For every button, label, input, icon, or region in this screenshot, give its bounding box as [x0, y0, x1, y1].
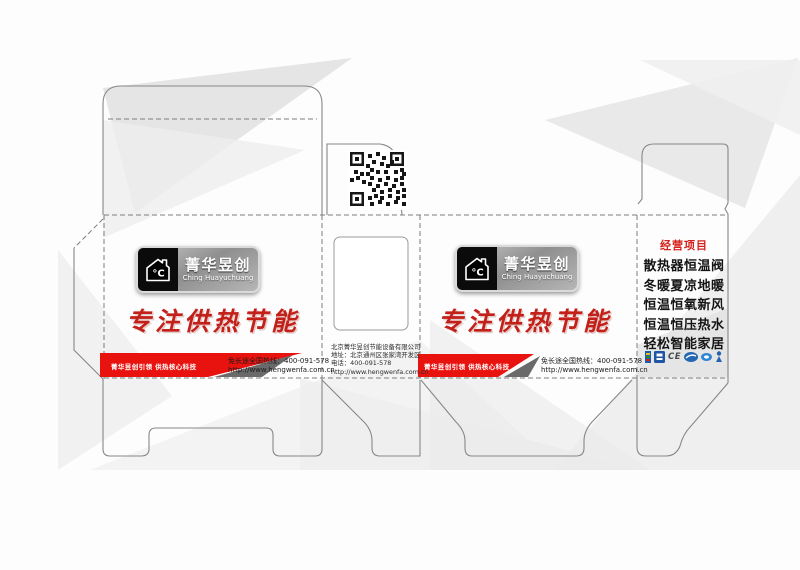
- degree-mark: °C: [152, 268, 164, 279]
- hotline-text: 免长途全国热线：400-091-578: [541, 357, 648, 366]
- figure-badge-icon: [715, 351, 723, 363]
- website-text: http://www.hengwenfa.com.cn: [541, 366, 648, 375]
- business-item: 冬暖夏凉地暖: [636, 277, 732, 297]
- business-item: 恒温恒氧新风: [636, 296, 732, 316]
- company-info-block: 北京菁华昱创节能设备有限公司 地址：北京通州区张家湾开发区 电话：400-091…: [331, 343, 428, 376]
- logo-house-icon: °C: [457, 247, 497, 290]
- logo-house-icon: °C: [138, 248, 178, 291]
- company-phone: 电话：400-091-578: [331, 359, 428, 367]
- ce-mark: CE: [668, 352, 681, 362]
- website-text: http://www.hengwenfa.com.cn: [228, 366, 335, 375]
- banner-tagline-back: 菁华昱创引领 供热核心科技: [424, 361, 509, 371]
- contact-block-front: 免长途全国热线：400-091-578 http://www.hengwenfa…: [228, 357, 335, 374]
- business-scope-panel: 经营项目 散热器恒温阀 冬暖夏凉地暖 恒温恒氧新风 恒温恒压热水 轻松智能家居: [636, 237, 732, 355]
- business-scope-title: 经营项目: [636, 237, 732, 253]
- certification-icons-row: CE: [645, 350, 723, 364]
- business-item: 恒温恒压热水: [636, 316, 732, 336]
- contact-block-back: 免长途全国热线：400-091-578 http://www.hengwenfa…: [541, 357, 648, 374]
- brand-name-cn: 菁华昱创: [504, 257, 570, 272]
- box-dieline-artboard: °C 菁华昱创 Ching Huayuchuang 专注供热节能 菁华昱创引领 …: [0, 0, 800, 570]
- qr-code: [348, 150, 408, 210]
- hotline-text: 免长途全国热线：400-091-578: [228, 357, 335, 366]
- energy-label-icon: [645, 351, 651, 363]
- slogan-back: 专注供热节能: [419, 302, 631, 338]
- oval-badge-icon: [701, 353, 712, 361]
- brand-name-en: Ching Huayuchuang: [183, 275, 254, 282]
- brand-logo-back: °C 菁华昱创 Ching Huayuchuang: [455, 245, 579, 292]
- company-name: 北京菁华昱创节能设备有限公司: [331, 343, 428, 351]
- iso-swirl-badge-icon: [684, 352, 698, 362]
- glue-flap-crease: [74, 219, 103, 248]
- brand-name-cn: 菁华昱创: [185, 258, 251, 273]
- business-item: 散热器恒温阀: [636, 257, 732, 277]
- quality-cert-icon: [654, 351, 665, 363]
- brand-logo-front: °C 菁华昱创 Ching Huayuchuang: [136, 246, 260, 293]
- banner-tagline-front: 菁华昱创引领 供热核心科技: [111, 361, 196, 371]
- brand-name-en: Ching Huayuchuang: [502, 274, 573, 281]
- window-cutout: [334, 237, 408, 330]
- slogan-front: 专注供热节能: [107, 302, 319, 338]
- company-website: http://www.hengwenfa.com.cn: [331, 368, 428, 376]
- degree-mark: °C: [471, 267, 483, 278]
